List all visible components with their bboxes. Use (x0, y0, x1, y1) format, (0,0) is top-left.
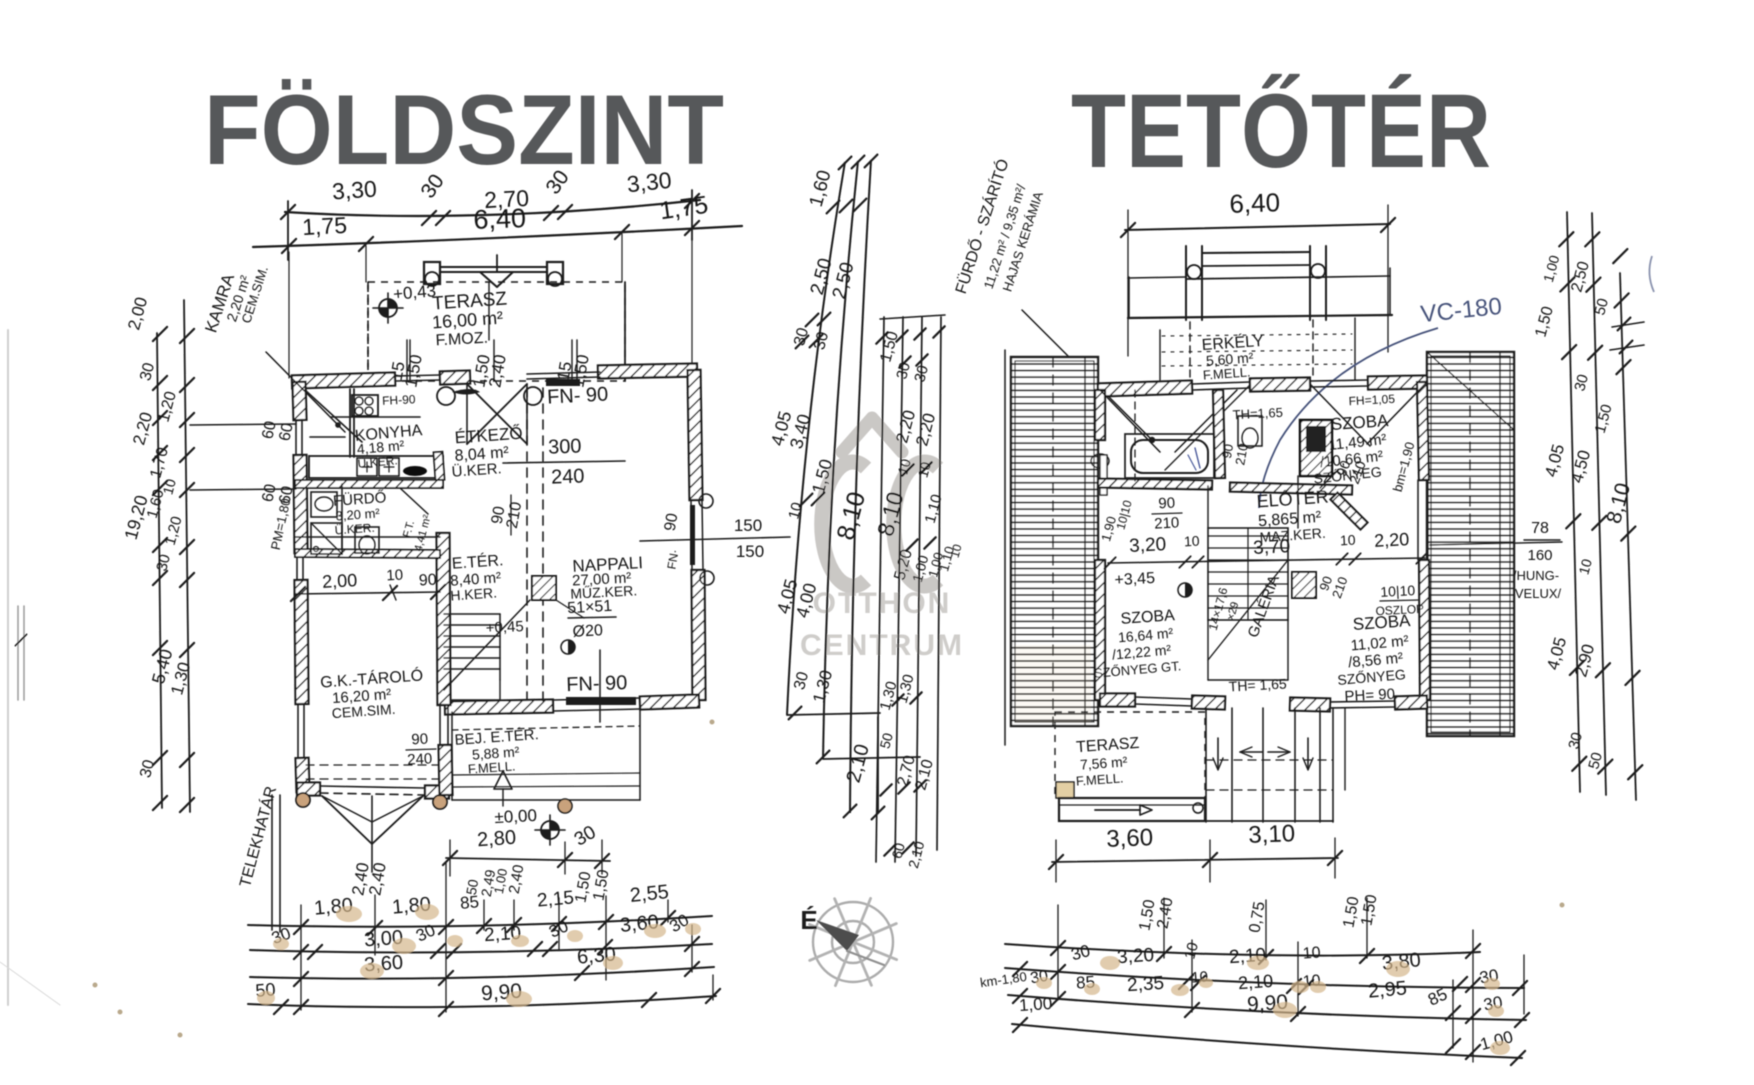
svg-text:/HUNG-: /HUNG- (1513, 568, 1559, 583)
svg-text:90: 90 (411, 731, 429, 749)
svg-text:3,10: 3,10 (1248, 820, 1296, 849)
svg-text:Ø20: Ø20 (572, 622, 603, 641)
svg-text:6,40: 6,40 (1229, 187, 1281, 219)
svg-text:78: 78 (1531, 520, 1549, 537)
svg-text:+0,45: +0,45 (485, 618, 524, 637)
svg-text:1,00: 1,00 (1018, 994, 1052, 1015)
svg-text:3,60: 3,60 (1106, 824, 1154, 853)
svg-text:160: 160 (1527, 547, 1552, 564)
svg-text:2,80: 2,80 (476, 827, 516, 852)
svg-text:10|10: 10|10 (1380, 582, 1416, 600)
svg-text:2,35: 2,35 (1126, 973, 1164, 997)
svg-text:FN- 90: FN- 90 (547, 383, 609, 408)
svg-text:PH= 90: PH= 90 (1344, 686, 1395, 706)
svg-text:±0,00: ±0,00 (494, 806, 537, 827)
svg-text:3,20: 3,20 (1129, 534, 1167, 557)
svg-text:90: 90 (418, 572, 437, 590)
svg-text:210: 210 (1154, 514, 1180, 532)
svg-text:FN- 90: FN- 90 (566, 672, 628, 696)
svg-text:TH=1,65: TH=1,65 (1232, 405, 1283, 423)
svg-text:10: 10 (1184, 533, 1201, 550)
svg-text:3,30: 3,30 (331, 175, 377, 204)
svg-text:VELUX/: VELUX/ (1515, 586, 1562, 601)
svg-text:TH= 1,65: TH= 1,65 (1228, 675, 1287, 694)
svg-text:3,20: 3,20 (1116, 945, 1154, 969)
svg-text:2,55: 2,55 (629, 881, 670, 907)
svg-text:2,95: 2,95 (1367, 977, 1408, 1002)
svg-text:1,75: 1,75 (302, 212, 348, 240)
svg-text:2,20: 2,20 (1374, 529, 1410, 551)
svg-text:F.MOZ.: F.MOZ. (435, 330, 488, 350)
svg-text:Ü.KER.: Ü.KER. (451, 459, 502, 480)
svg-text:2,15: 2,15 (536, 887, 575, 911)
svg-text:FH=1,05: FH=1,05 (1348, 392, 1395, 408)
svg-text:É: É (800, 905, 817, 935)
svg-text:150: 150 (734, 516, 762, 535)
svg-text:+0,43: +0,43 (392, 281, 437, 304)
svg-text:2,10: 2,10 (1237, 971, 1273, 993)
svg-text:10: 10 (1302, 944, 1321, 962)
svg-text:90: 90 (1158, 495, 1176, 513)
svg-text:150: 150 (736, 542, 764, 561)
svg-text:OTTHON: OTTHON (813, 587, 952, 620)
svg-text:Ü.KER.: Ü.KER. (334, 521, 375, 538)
svg-text:90: 90 (662, 512, 682, 533)
svg-text:240: 240 (551, 465, 585, 488)
svg-text:10: 10 (386, 567, 404, 585)
svg-text:2,00: 2,00 (322, 570, 358, 592)
svg-text:TETŐTÉR: TETŐTÉR (1071, 73, 1491, 190)
svg-text:300: 300 (548, 435, 582, 458)
svg-text:+3,45: +3,45 (1114, 570, 1155, 589)
svg-text:240: 240 (407, 750, 433, 768)
svg-text:FH-90: FH-90 (382, 392, 416, 408)
svg-text:SZOBA: SZOBA (1352, 611, 1411, 634)
svg-text:10: 10 (1340, 532, 1357, 549)
svg-text:H.KER.: H.KER. (450, 584, 498, 603)
svg-text:6,40: 6,40 (473, 203, 527, 235)
svg-text:3,30: 3,30 (626, 167, 673, 198)
